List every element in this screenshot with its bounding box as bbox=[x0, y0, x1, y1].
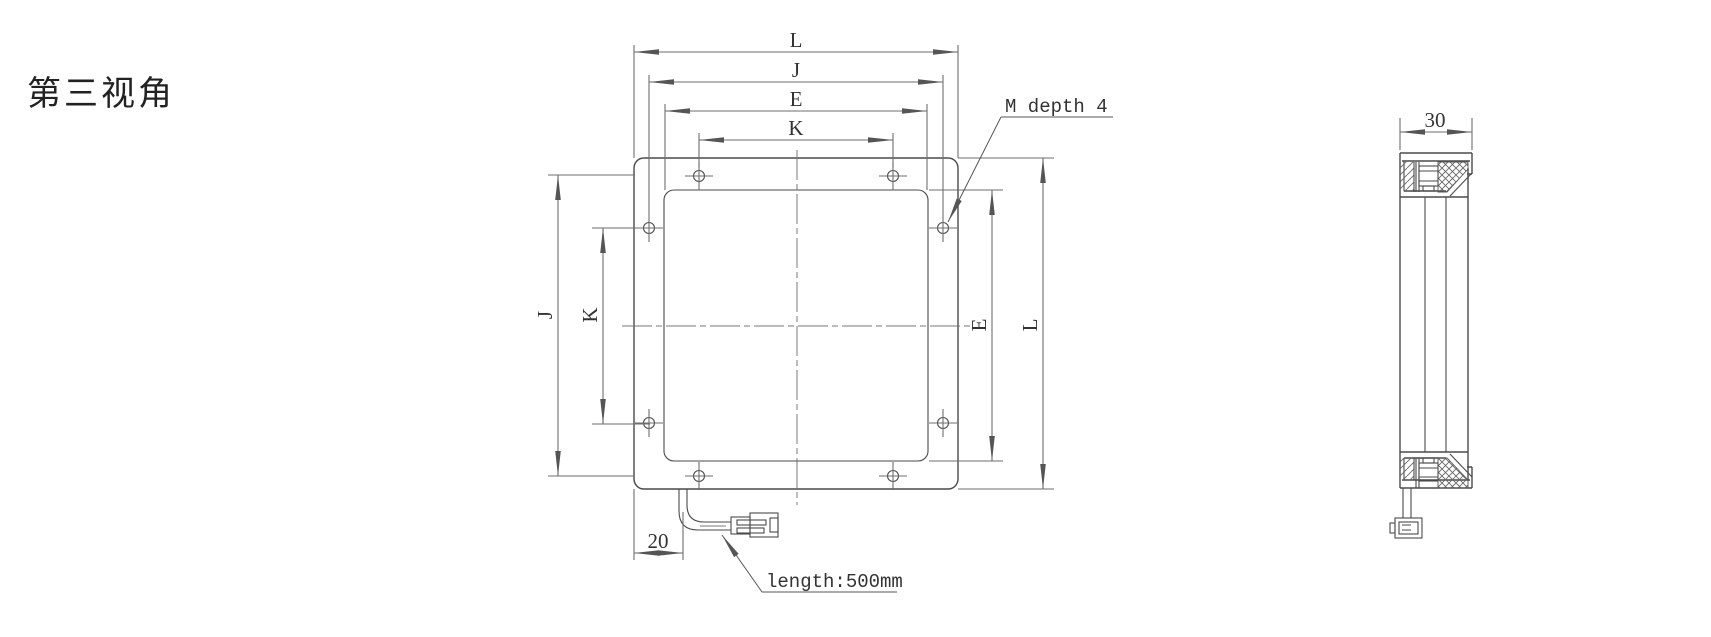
dimensions-front: L J E K J K E L bbox=[533, 28, 1043, 489]
dim-label-20: 20 bbox=[648, 529, 669, 553]
dim-label-L-top: L bbox=[790, 28, 803, 52]
hatched-wall-top-left bbox=[1400, 162, 1414, 192]
cable-length-callout: length:500mm bbox=[722, 535, 903, 593]
thread-callout-text: M depth 4 bbox=[1005, 96, 1108, 118]
dim-label-E-right: E bbox=[967, 319, 991, 332]
hole-crosshair bbox=[635, 409, 663, 437]
thread-callout: M depth 4 bbox=[948, 96, 1113, 222]
side-bottom-corner-section bbox=[1400, 454, 1472, 488]
cable-offset-dimension: 20 bbox=[634, 489, 683, 560]
crosshatched-corner-block-top bbox=[1438, 162, 1468, 192]
cable-length-leader bbox=[722, 535, 762, 592]
dim-label-J-top: J bbox=[792, 58, 800, 82]
side-connector-tab bbox=[1390, 523, 1395, 533]
cable-length-text: length:500mm bbox=[766, 571, 903, 593]
screw-head-lines bbox=[1419, 468, 1438, 477]
side-view: 30 bbox=[1390, 108, 1472, 538]
screw-head bbox=[1419, 166, 1438, 186]
side-outline bbox=[1400, 153, 1472, 488]
connector-pin-upper bbox=[737, 520, 766, 525]
dim-label-K-top: K bbox=[788, 116, 803, 140]
screw-tip bbox=[1423, 186, 1434, 191]
hole-crosshair bbox=[929, 409, 957, 437]
cable-assembly bbox=[679, 489, 778, 537]
extension-lines-front bbox=[548, 45, 1054, 489]
mounting-hole-right-upper bbox=[929, 214, 957, 242]
hole-crosshair bbox=[929, 214, 957, 242]
mounting-hole-right-lower bbox=[929, 409, 957, 437]
dim-label-E-top: E bbox=[790, 87, 803, 111]
mounting-hole-bottom-left bbox=[685, 462, 713, 490]
dim-label-30: 30 bbox=[1425, 108, 1446, 132]
screw-section-bottom bbox=[1416, 458, 1438, 488]
depth-dimension: 30 bbox=[1400, 108, 1472, 150]
panel-outer-outline bbox=[634, 158, 958, 489]
dim-label-L-right: L bbox=[1018, 319, 1042, 332]
side-cable-lines bbox=[1403, 488, 1411, 518]
connector-latch bbox=[770, 518, 778, 532]
screw-head bbox=[1419, 463, 1438, 481]
hatched-wall-bottom-left bbox=[1400, 458, 1414, 480]
cable-inner-line bbox=[687, 489, 731, 522]
screw-tip bbox=[1423, 458, 1434, 463]
side-cable-assembly bbox=[1390, 488, 1422, 538]
crosshatched-corner-block-bottom bbox=[1438, 458, 1468, 488]
thread-leader-line bbox=[948, 117, 1001, 222]
technical-drawing: L J E K J K E L M depth 4 bbox=[0, 0, 1711, 637]
dim-label-J-left: J bbox=[533, 311, 557, 319]
mounting-hole-bottom-right bbox=[879, 462, 907, 490]
screw-head-lines bbox=[1419, 171, 1438, 181]
dim-label-K-left: K bbox=[578, 307, 602, 322]
mounting-hole-left-lower bbox=[635, 409, 663, 437]
screw-section-top bbox=[1416, 162, 1438, 192]
side-body-lines bbox=[1404, 161, 1446, 480]
hole-crosshair bbox=[879, 462, 907, 490]
drawing-canvas: 第三视角 bbox=[0, 0, 1711, 637]
side-connector-pins bbox=[1402, 525, 1411, 530]
front-view: L J E K J K E L M depth 4 bbox=[533, 28, 1113, 593]
hole-crosshair bbox=[685, 462, 713, 490]
side-connector-inner bbox=[1399, 522, 1418, 534]
